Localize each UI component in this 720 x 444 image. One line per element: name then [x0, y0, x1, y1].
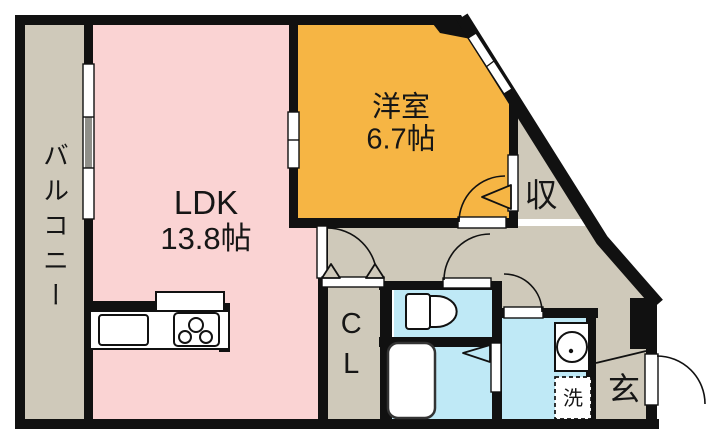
balcony-window-sash	[85, 117, 92, 168]
western-room-size: 6.7帖	[366, 124, 435, 156]
entrance-door-arc	[657, 356, 705, 404]
floor-plan: バルコニー LDK 13.8帖 洋室 6.7帖 収 CL 玄 洗	[0, 0, 720, 444]
bathtub	[388, 343, 435, 418]
stove-burner	[189, 318, 203, 332]
ldk-hall-door-leaf	[317, 226, 327, 278]
ldk-size: 13.8帖	[160, 222, 251, 257]
kitchen-sink	[99, 315, 148, 345]
kitchen-counter	[156, 292, 224, 312]
closet-label: CL	[335, 308, 367, 388]
entrance-pillar	[630, 298, 657, 349]
washbasin-drain	[569, 349, 573, 353]
entrance-label: 玄	[608, 372, 640, 408]
western-room-label: 洋室 6.7帖	[366, 92, 435, 157]
bathroom-door-leaf	[491, 343, 501, 392]
toilet-door-leaf	[443, 278, 491, 288]
entrance-door-leaf	[645, 354, 658, 405]
stove-burner	[200, 331, 212, 343]
wall-top	[15, 15, 457, 25]
balcony-label: バルコニー	[39, 142, 68, 317]
wall-bottom	[15, 419, 659, 429]
western-room-name: 洋室	[366, 92, 435, 124]
washroom-doorway	[504, 307, 543, 318]
ldk-name: LDK	[160, 185, 251, 222]
washer-label: 洗	[563, 388, 583, 410]
toilet-tank	[406, 294, 430, 329]
washbasin-bowl	[557, 332, 587, 362]
wall-left	[15, 15, 25, 429]
western-room-doorway	[458, 217, 506, 228]
storage-label: 収	[525, 178, 558, 215]
stove-burner	[179, 331, 191, 343]
ldk-label: LDK 13.8帖	[160, 185, 251, 257]
